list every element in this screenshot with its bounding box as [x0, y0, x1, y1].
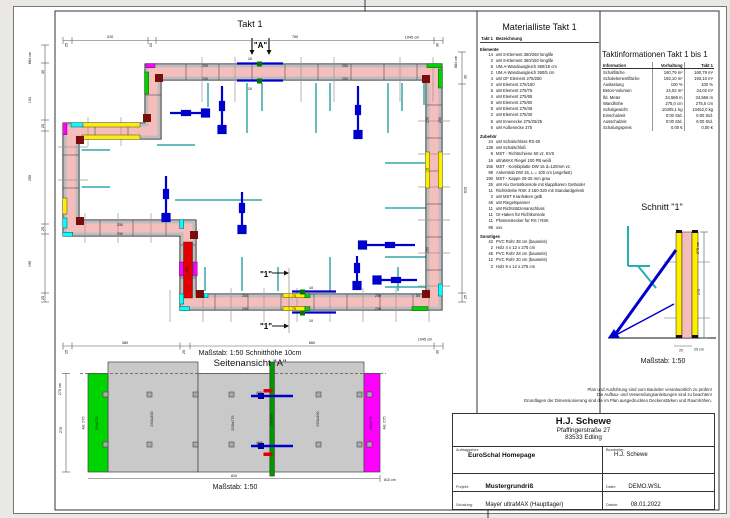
editor-cell: Bearbeiter: H.J. Schewe: [603, 447, 714, 473]
svg-text:30: 30: [464, 75, 468, 79]
panel-label: 200x275: [230, 415, 235, 431]
takt-information-title: Taktinformationen Takt 1 bis 1: [602, 50, 714, 59]
dim-label: 810 cm: [384, 478, 396, 482]
svg-text:25: 25: [41, 124, 45, 128]
formwork-value: Mayer ultraMAX (Hauptlager): [485, 502, 563, 508]
disclaimer-line: Grundlagen der Dimensionierung sind die …: [360, 398, 712, 403]
table-row: Schalungspreis0,00 €0,00 €: [602, 125, 714, 131]
panel-label: 45x275: [368, 416, 373, 430]
marker-1-label: "1": [260, 270, 272, 279]
svg-text:250: 250: [202, 64, 208, 68]
svg-text:250: 250: [202, 77, 208, 81]
svg-text:255: 255: [28, 175, 32, 181]
company-block: H.J. Schewe Pfaffingerstraße 27 83533 Ed…: [453, 414, 714, 447]
dim-label: 10: [309, 286, 313, 290]
material-group-items: 24uM Schalschloss RS 60 138uM Schalschlo…: [480, 139, 599, 230]
svg-text:75: 75: [292, 294, 296, 298]
section-view-scale: Maßstab: 1:50: [613, 358, 713, 365]
side-view-title: Seitenansicht "A": [150, 358, 350, 369]
material-list-item: 6uM Außenecke 275: [480, 125, 599, 131]
svg-text:150: 150: [185, 267, 189, 273]
alignment-rails: [82, 83, 426, 291]
inner-corner-blocks: [76, 74, 430, 298]
file-cell: Datei: DEMO.WSL: [603, 474, 714, 491]
dim-label: 270 cm: [58, 383, 62, 395]
material-list-item: 2Holz 9 x 12 x 275 cm: [480, 264, 599, 270]
svg-text:250: 250: [117, 232, 123, 236]
material-group-items: 14uM S-Element 360/250 longlife 2uM S-El…: [480, 52, 599, 131]
svg-text:25: 25: [464, 295, 468, 299]
material-list-title: Materialliste Takt 1: [480, 22, 599, 32]
section-view-title: Schnitt "1": [612, 202, 712, 212]
svg-text:250: 250: [375, 294, 381, 298]
svg-text:250: 250: [375, 307, 381, 311]
project-cell: Projekt: Mustergrundriß: [453, 474, 603, 491]
svg-text:1045 cm: 1045 cm: [405, 36, 420, 40]
date-cell: Datum: 08.01.2022: [603, 492, 714, 509]
column-header: Vorhaltung: [652, 62, 684, 69]
plan-title: Takt 1: [195, 19, 305, 30]
svg-text:884 cm: 884 cm: [28, 52, 32, 64]
svg-text:250: 250: [242, 294, 248, 298]
svg-text:25: 25: [41, 227, 45, 231]
material-list-col-qty: Takt 1: [480, 36, 493, 41]
svg-text:250: 250: [342, 77, 348, 81]
svg-text:50: 50: [416, 294, 420, 298]
takt-information-table: Information Vorhaltung Takt 1 Schalfläch…: [602, 62, 714, 131]
client-cell: Auftraggeber: EuroSchal Homepage: [453, 447, 603, 473]
svg-text:250: 250: [342, 64, 348, 68]
svg-text:15: 15: [426, 168, 430, 172]
element-joints: [63, 64, 443, 311]
material-list: Materialliste Takt 1 Takt 1 Bezeichnung …: [480, 22, 599, 270]
material-group-items: 42PVC Rohr 38 cm (bauseits) 2Holz 4 x 12…: [480, 239, 599, 269]
svg-text:25: 25: [41, 296, 45, 300]
panel-label: 250x300: [149, 411, 154, 427]
svg-text:30: 30: [41, 70, 45, 74]
file-value: DEMO.WSL: [628, 484, 661, 490]
company-city: 83533 Edling: [453, 434, 714, 441]
svg-text:30: 30: [436, 350, 440, 354]
client-value: EuroSchal Homepage: [468, 452, 599, 459]
dim-label: 10: [248, 57, 252, 61]
date-value: 08.01.2022: [631, 502, 661, 508]
date-caption: Datum:: [606, 503, 618, 507]
svg-text:250: 250: [426, 117, 430, 123]
column-header: Takt 1: [684, 62, 714, 69]
svg-text:310: 310: [107, 35, 113, 39]
svg-text:250: 250: [438, 117, 442, 123]
column-header: Information: [602, 62, 652, 69]
dim-label: 20: [679, 349, 683, 353]
svg-text:195: 195: [28, 261, 32, 267]
svg-text:250: 250: [426, 247, 430, 253]
dim-label: 275 cm: [696, 242, 700, 254]
panel-label: AE 275: [81, 416, 86, 430]
marker-a-label: "A": [254, 41, 268, 50]
svg-text:760: 760: [292, 35, 298, 39]
svg-text:134: 134: [28, 97, 32, 103]
title-block: H.J. Schewe Pfaffingerstraße 27 83533 Ed…: [452, 413, 715, 510]
project-caption: Projekt:: [456, 485, 469, 489]
editor-value: H.J. Schewe: [614, 452, 711, 458]
panel-label: 250x300: [315, 411, 320, 427]
panel-label: 55x275: [94, 416, 99, 430]
dim-label: 275: [697, 289, 701, 295]
svg-text:884 cm: 884 cm: [454, 56, 458, 68]
marker-1-label: "1": [260, 322, 272, 331]
svg-text:75: 75: [292, 307, 296, 311]
material-list-item: 99xxx: [480, 225, 599, 231]
material-list-col-name: Bezeichnung: [496, 36, 522, 41]
plan-wall-outline: [71, 72, 434, 302]
material-list-header: Takt 1 Bezeichnung: [480, 36, 599, 43]
disclaimer-text: Plan und Ausführung sind vom Bauleiter v…: [360, 387, 712, 403]
company-name: H.J. Schewe: [453, 414, 714, 427]
svg-text:380: 380: [122, 341, 128, 345]
props-and-walers: [163, 64, 418, 313]
table-row: Schalfläche160,79 m²160,79 m²: [602, 69, 714, 76]
svg-text:25: 25: [65, 350, 69, 354]
formwork-cell: Schalung: Mayer ultraMAX (Hauptlager): [453, 492, 603, 509]
svg-text:1045 cm: 1045 cm: [418, 338, 433, 342]
svg-text:20: 20: [149, 43, 153, 47]
dim-label: 10: [248, 87, 252, 91]
dim-label: 810: [231, 474, 237, 478]
panel-label: AE 275: [382, 416, 387, 430]
svg-text:250: 250: [117, 223, 123, 227]
project-value: Mustergrundriß: [485, 483, 533, 490]
svg-text:50: 50: [201, 294, 205, 298]
takt-information: Taktinformationen Takt 1 bis 1 Informati…: [602, 50, 714, 131]
dim-label: 270: [59, 427, 63, 433]
formwork-caption: Schalung:: [456, 503, 473, 507]
svg-text:660: 660: [309, 341, 315, 345]
company-street: Pfaffingerstraße 27: [453, 427, 714, 434]
schnitt-drawing: 275 cm 275 20 25 cm: [608, 226, 716, 353]
plan-scale-caption: Maßstab: 1:50 Schnitthöhe 10cm: [140, 350, 360, 357]
file-caption: Datei:: [606, 485, 616, 489]
svg-text:629: 629: [464, 187, 468, 193]
svg-text:25: 25: [65, 43, 69, 47]
svg-text:250: 250: [242, 307, 248, 311]
dim-label: 25 cm: [694, 348, 704, 352]
svg-text:30: 30: [436, 43, 440, 47]
side-view-drawing: AE 275 55x275 250x300 200x275 10x300 250…: [58, 362, 396, 482]
side-view-scale: Maßstab: 1:50: [165, 484, 305, 491]
dim-label: 10: [309, 319, 313, 323]
panel-label: 10x300: [269, 413, 274, 427]
formwork-accents: [63, 64, 443, 311]
